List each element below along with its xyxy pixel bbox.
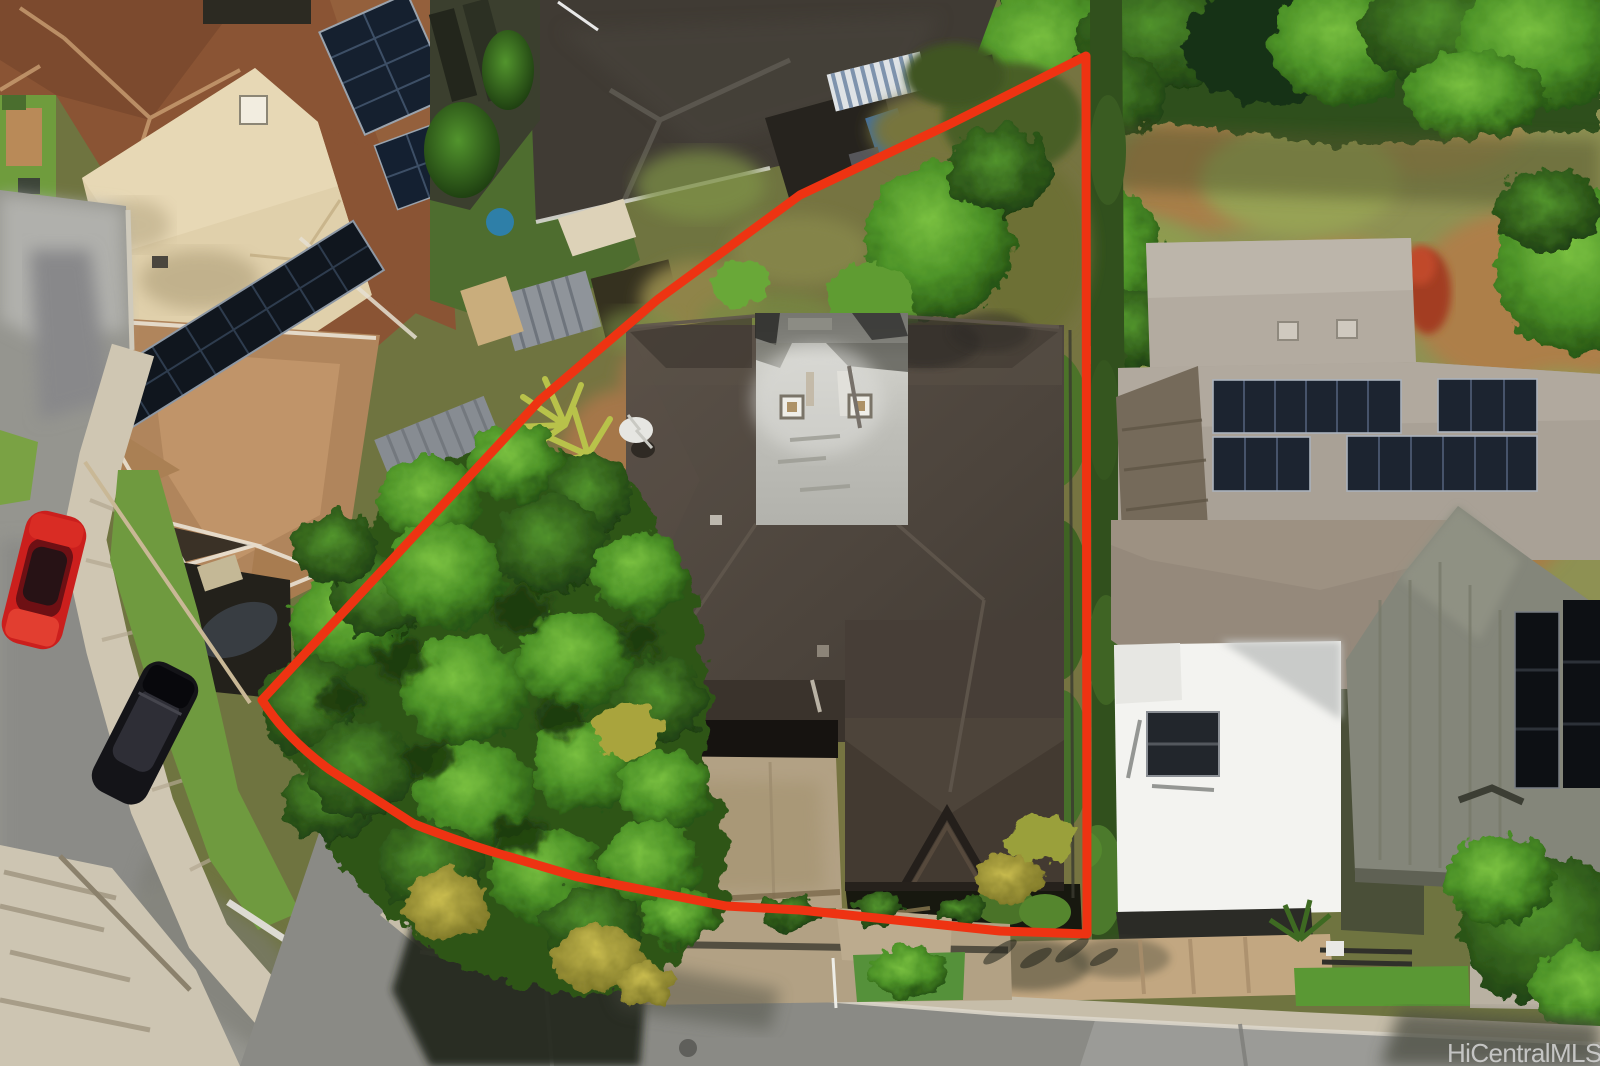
svg-text:HiCentralMLS: HiCentralMLS [1447,1038,1600,1066]
